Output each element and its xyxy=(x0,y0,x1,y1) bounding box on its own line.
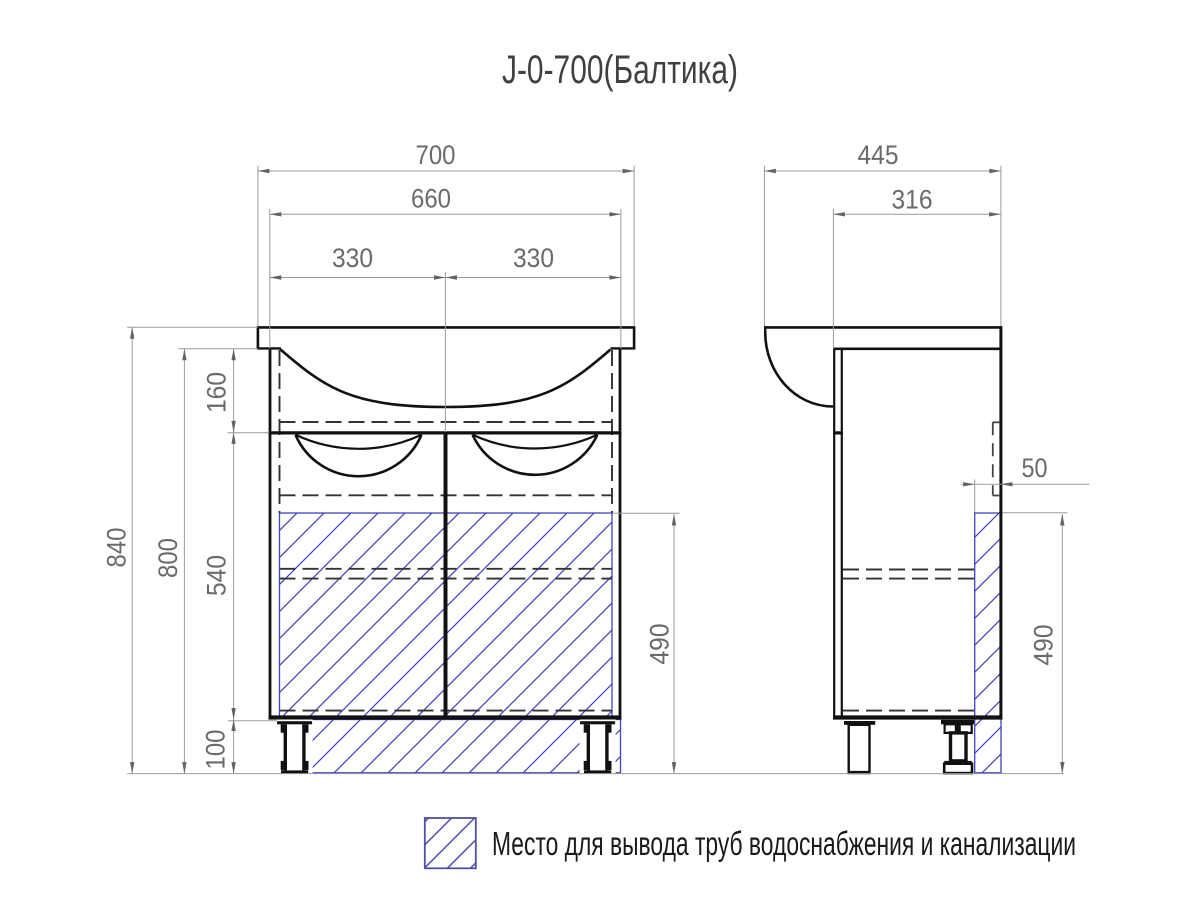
svg-text:160: 160 xyxy=(201,372,231,413)
svg-text:330: 330 xyxy=(513,243,554,273)
svg-text:316: 316 xyxy=(892,185,933,215)
svg-text:Место для вывода труб водоснаб: Место для вывода труб водоснабжения и ка… xyxy=(492,825,1076,862)
svg-text:100: 100 xyxy=(201,730,231,770)
svg-text:490: 490 xyxy=(1029,625,1059,666)
svg-text:445: 445 xyxy=(858,140,899,170)
svg-text:840: 840 xyxy=(102,528,132,568)
svg-text:330: 330 xyxy=(332,243,373,273)
svg-text:660: 660 xyxy=(411,183,451,213)
svg-text:J-0-700(Балтика): J-0-700(Балтика) xyxy=(502,48,738,92)
svg-text:540: 540 xyxy=(201,555,231,596)
svg-text:800: 800 xyxy=(153,538,183,578)
svg-text:490: 490 xyxy=(645,624,675,665)
svg-text:50: 50 xyxy=(1022,453,1048,483)
svg-text:700: 700 xyxy=(416,140,456,170)
